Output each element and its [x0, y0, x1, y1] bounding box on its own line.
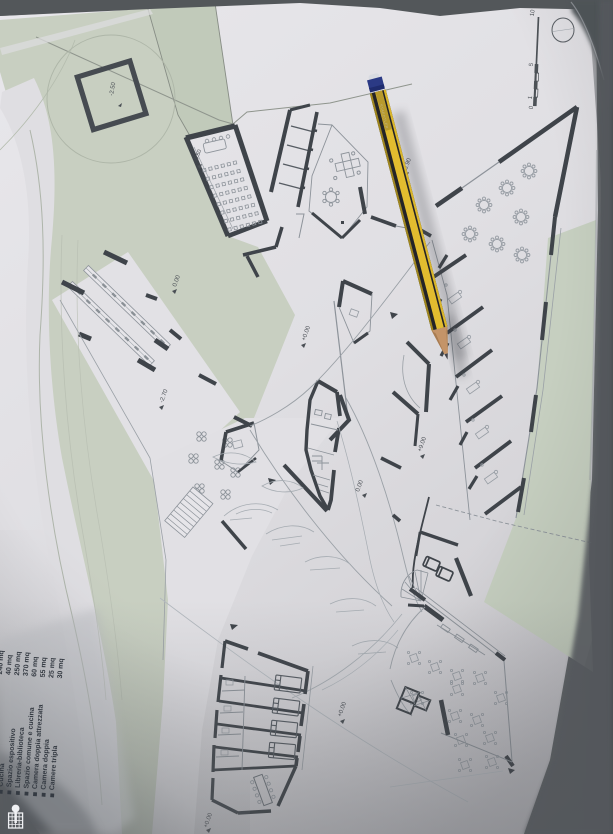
- svg-text:25 mq: 25 mq: [48, 658, 56, 679]
- svg-text:40 mq: 40 mq: [5, 655, 13, 676]
- svg-text:30 mq: 30 mq: [57, 658, 65, 679]
- svg-text:60 mq: 60 mq: [31, 656, 39, 677]
- svg-text:55 mq: 55 mq: [40, 657, 48, 678]
